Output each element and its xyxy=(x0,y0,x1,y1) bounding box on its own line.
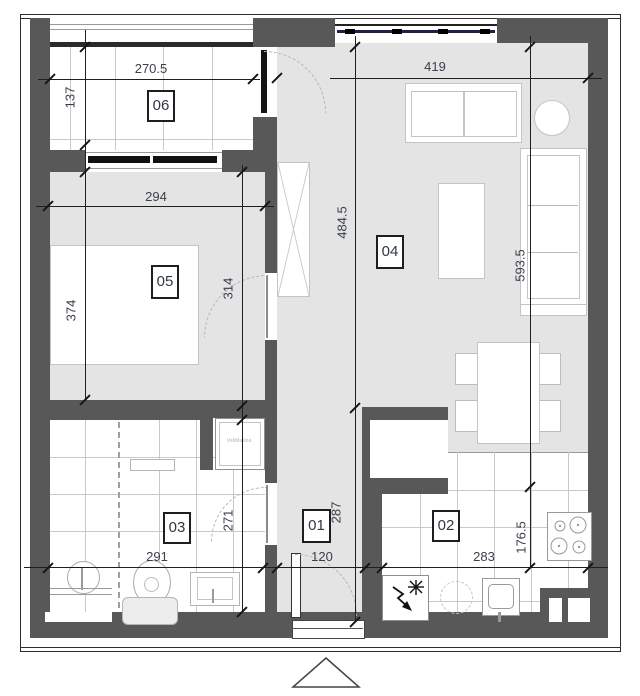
window-mullion xyxy=(480,29,490,34)
sofa-cushion xyxy=(464,91,517,137)
bidet-tap xyxy=(212,589,214,603)
dim-bedroom-w: 294 xyxy=(126,189,186,204)
railing-line xyxy=(50,29,253,30)
side-table-round xyxy=(534,100,570,136)
toilet-drain xyxy=(144,577,159,592)
triangle-up-icon xyxy=(290,655,362,691)
window-glazing-line xyxy=(337,30,495,33)
dim-line-bottom-chain xyxy=(24,567,608,568)
dim-kitchen-h: 176.5 xyxy=(514,510,529,566)
threshold-line xyxy=(292,628,363,629)
sofa-right-seat xyxy=(527,155,580,299)
tile-grid-line xyxy=(115,47,116,150)
dim-living-h: 484.5 xyxy=(335,195,350,251)
duct-shaft xyxy=(568,598,590,622)
railing-line xyxy=(50,24,253,25)
dim-kitchen-w: 283 xyxy=(454,549,514,564)
stove xyxy=(547,512,592,561)
wall-top-middle xyxy=(253,18,335,47)
vanity-line xyxy=(50,588,112,589)
washing-machine-inner xyxy=(219,422,261,466)
sofa-seam xyxy=(527,205,578,206)
radiator xyxy=(130,459,175,471)
duct-shaft xyxy=(549,598,562,622)
window-sash xyxy=(88,156,150,163)
room-label-05: 05 xyxy=(151,265,179,299)
dim-bath-h: 271 xyxy=(221,499,236,543)
dim-bath-w: 291 xyxy=(127,549,187,564)
bathroom-door-leaf xyxy=(266,485,268,543)
room-label-06: 06 xyxy=(147,90,175,122)
floor-plan: VešMašina xyxy=(0,0,640,696)
kitchen-tap xyxy=(498,612,501,622)
electric-boiler-box xyxy=(382,575,429,621)
bathroom-sink xyxy=(67,561,100,594)
tile-grid-line xyxy=(50,139,253,140)
window-mullion xyxy=(438,29,448,34)
sofa-cushion xyxy=(411,91,464,137)
stove-burners-icon xyxy=(548,513,591,560)
coffee-table xyxy=(438,183,485,279)
room-label-02: 02 xyxy=(432,510,460,542)
dim-line-left-chain xyxy=(85,30,86,400)
railing-edge xyxy=(50,42,253,47)
wall-bathroom-top xyxy=(30,400,213,420)
wall-left xyxy=(30,18,50,638)
toilet-tank xyxy=(122,597,178,625)
kitchen-sink-basin xyxy=(488,584,514,609)
window-frame-line xyxy=(85,168,222,169)
dim-hall-w: 120 xyxy=(292,549,352,564)
bolt-star-icon xyxy=(383,576,428,620)
dim-living-w: 419 xyxy=(405,59,465,74)
room-label-04: 04 xyxy=(376,235,404,269)
dim-line-living-w xyxy=(330,78,602,79)
dim-balcony-d: 137 xyxy=(63,76,78,120)
dim-line-hall-chain xyxy=(355,36,356,622)
dim-living-h-right: 593.5 xyxy=(513,238,528,294)
floor-edge-line xyxy=(448,452,588,453)
dim-bedroom-h-right: 314 xyxy=(221,267,236,311)
tile-grid-line xyxy=(212,47,213,150)
wall-niche xyxy=(45,612,112,622)
wall-window-pier-left xyxy=(50,150,85,172)
sofa-seam xyxy=(527,252,578,253)
dim-line-mid-chain xyxy=(242,165,243,612)
wall-corner-piece xyxy=(253,117,265,172)
shower-curtain-line xyxy=(118,422,120,608)
tile-grid-line xyxy=(531,452,532,612)
window-mullion xyxy=(345,29,355,34)
wall-niche-left xyxy=(200,400,213,470)
dim-bedroom-h-left: 374 xyxy=(64,289,79,333)
dim-line-bedroom-w xyxy=(36,206,274,207)
room-label-01: 01 xyxy=(302,509,331,543)
vanity-line xyxy=(50,594,112,595)
bidet-inner xyxy=(197,577,233,600)
sink-tap xyxy=(81,568,83,590)
wardrobe xyxy=(277,162,310,297)
window-frame-line xyxy=(335,24,497,26)
wardrobe-cross-icon xyxy=(278,163,309,296)
window-sash xyxy=(153,156,217,163)
window-frame-line xyxy=(85,152,222,153)
room-label-03: 03 xyxy=(163,512,191,544)
tile-grid-line xyxy=(48,494,265,495)
dim-balcony-w: 270.5 xyxy=(121,61,181,76)
washing-machine-label: VešMašina xyxy=(216,438,262,444)
window-mullion xyxy=(392,29,402,34)
installation-shaft xyxy=(370,420,448,478)
appliance-placeholder-circle xyxy=(440,581,473,614)
